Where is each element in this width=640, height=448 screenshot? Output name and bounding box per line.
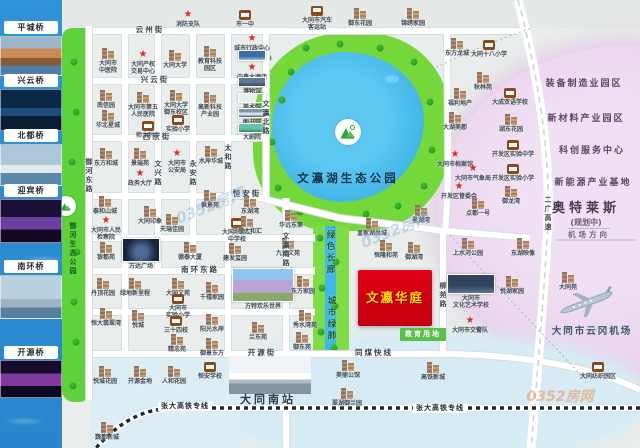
building-icon — [461, 238, 475, 249]
building-icon — [203, 46, 217, 57]
poi-label: 消防支队 — [176, 21, 200, 28]
building-icon — [183, 242, 197, 253]
building-icon — [168, 50, 182, 61]
road-label-vertical: 二广高速 — [544, 196, 552, 232]
building-marker: 东方龙城 — [445, 38, 469, 57]
building-marker: 秀水湾苑 — [293, 310, 317, 329]
railway-label: 张大高铁专线 — [158, 402, 212, 411]
building-marker: 景瑞苑 — [131, 148, 149, 167]
school-marker: 大同市 实验小学 — [166, 294, 190, 319]
school-marker: 开发区实验中学 — [492, 140, 534, 158]
poi-label: 南信园 — [97, 102, 115, 109]
building-marker: 悦城花园 — [93, 366, 117, 385]
building-icon — [99, 242, 113, 253]
poi-label: 开发区实验中学 — [492, 151, 534, 158]
building-marker: 秋林苑 — [474, 72, 492, 91]
star-icon: ★ — [173, 149, 182, 159]
poi-label: 实验小学 — [166, 126, 190, 133]
building-marker: 大同市第五 人民医院 — [128, 92, 158, 118]
building-icon — [298, 310, 312, 321]
poi-label: 御龙湾 — [502, 198, 520, 205]
photo-thumb: 博物馆 — [238, 77, 266, 95]
star-icon: ★ — [184, 10, 193, 20]
poi-label: 大同市气象局 — [455, 175, 491, 182]
poi-label: 锦绣家园 — [401, 20, 425, 27]
poi-label: 东湖映像 — [511, 250, 535, 257]
building-marker: 开源金地 — [128, 366, 152, 385]
photo-thumb: 方特欢乐世界 — [232, 268, 294, 310]
star-icon: ★ — [469, 164, 478, 174]
watermark: 0352房网 — [359, 209, 432, 251]
building-marker: 丹顶花园 — [91, 278, 115, 297]
poi-label: 大同印象 — [138, 218, 162, 225]
building-marker: 建发玺园 — [223, 243, 247, 262]
poi-label: 高铁新城 — [421, 374, 445, 381]
star-icon: ★ — [136, 169, 145, 179]
building-icon — [167, 366, 181, 377]
building-marker: 湖东花园 — [499, 114, 523, 133]
road-label: 开源街 — [248, 349, 277, 357]
park-name-vertical: 御河生态公园 — [69, 222, 77, 276]
building-icon — [353, 8, 367, 19]
star-icon: ★ — [102, 216, 111, 226]
building-marker: 南信园 — [97, 90, 115, 109]
building-marker: 华北星城 — [96, 110, 120, 129]
building-icon — [96, 278, 110, 289]
poi-label: 大同市第五 人民医院 — [128, 104, 158, 118]
building-marker: 御龙湾 — [502, 186, 520, 205]
star-icon: ★ — [248, 63, 257, 73]
building-icon — [516, 238, 530, 249]
building-marker: 锦绣家园 — [401, 8, 425, 27]
poi-label: 东湖湾 — [241, 208, 259, 215]
building-marker: 高新科技 产业园 — [198, 92, 222, 118]
building-marker: 人和花园 — [162, 366, 186, 385]
building-marker: 高铁新城 — [421, 362, 445, 381]
building-icon — [169, 90, 183, 101]
school-icon — [170, 316, 182, 326]
school-icon — [483, 40, 495, 50]
poi-label: 悦城 — [132, 322, 144, 329]
building-icon — [284, 210, 298, 221]
poi-label: 丹顶花园 — [91, 290, 115, 297]
building-icon — [407, 242, 421, 253]
building-icon — [128, 278, 142, 289]
building-icon — [133, 148, 147, 159]
poi-label: 人和花园 — [162, 378, 186, 385]
poi-label: 御湖湾 — [405, 254, 423, 261]
poi-label: 开发区实验小学 — [492, 175, 534, 182]
building-marker: 御东花园 — [348, 8, 372, 27]
poi-label: 德泰大厦 — [178, 254, 202, 261]
poi-label: 大同十八小学 — [471, 51, 507, 58]
poi-label: 大同市 中医院 — [99, 60, 117, 74]
poi-label: 福利地产 — [448, 100, 472, 107]
poi-label: 开发区管委会 — [441, 193, 477, 200]
poi-label: 泰和山城 — [93, 208, 117, 215]
land-use-tag: 教育用地 — [400, 328, 446, 341]
poi-label: 东方家园 — [291, 288, 315, 295]
building-marker: 水岸华城 — [199, 146, 223, 165]
star-poi-marker: ★中鑫大酒店 — [237, 63, 267, 81]
poi-label: 恒隆和苑 — [374, 252, 398, 259]
building-icon — [295, 332, 309, 343]
building-marker: 点都一号 — [466, 198, 490, 217]
building-icon — [100, 422, 114, 433]
building-marker: 美丽公馆 — [336, 360, 360, 379]
poi-label: 翠湖御兰园 — [332, 400, 362, 407]
building-marker: 御东苑 — [293, 332, 311, 351]
poi-label: 悦城花园 — [93, 378, 117, 385]
building-marker: 大同文苑 — [166, 278, 190, 297]
school-icon — [239, 10, 251, 20]
poi-label: 中鑫大酒店 — [237, 74, 267, 81]
poi-photo — [238, 77, 266, 87]
star-poi-marker: ★消防支队 — [176, 10, 200, 28]
road-label: 同煤快线 — [355, 349, 393, 357]
road-label-vertical: 御河东路 — [85, 158, 93, 194]
building-marker: 翠湖御兰园 — [332, 388, 362, 407]
star-poi-marker: ★大同市人民 检察院 — [91, 216, 121, 241]
zone-label: 新能源产业基地 — [554, 178, 631, 188]
star-poi-marker: ★开发区管委会 — [441, 182, 477, 200]
poi-label: 美丽公馆 — [336, 372, 360, 379]
school-marker: 师大附中 — [136, 121, 160, 139]
road-label-vertical: 柳苑路 — [439, 282, 447, 309]
star-poi-marker: ★大同市交警队 — [452, 316, 488, 334]
poi-label: 御东苑 — [293, 344, 311, 351]
building-marker: 华远东第 — [279, 210, 303, 229]
building-marker: 大同市 中医院 — [99, 48, 117, 74]
school-icon — [507, 140, 519, 150]
school-marker: 大同纺织园区 — [580, 362, 616, 380]
watermark: 0352房网 — [174, 185, 247, 227]
building-icon — [101, 48, 115, 59]
building-marker: 大同大学 御东校区 — [164, 90, 188, 116]
building-icon — [251, 322, 265, 333]
building-icon — [99, 148, 113, 159]
poi-label: 大同市档案馆 — [437, 161, 473, 168]
poi-label: 大剧院 — [243, 134, 261, 141]
poi-label: 东方和城 — [94, 160, 118, 167]
poi-photo — [238, 50, 266, 61]
school-icon — [142, 121, 154, 131]
road-label-vertical: 永安路 — [189, 160, 197, 187]
star-poi-marker: ★大同市档案馆 — [437, 150, 473, 168]
poi-label: 景瑞苑 — [131, 160, 149, 167]
building-icon — [453, 88, 467, 99]
zone-sublabel: (规划中) — [570, 218, 601, 227]
building-marker: 银都苑 — [97, 242, 115, 261]
building-marker: 东方家园 — [291, 276, 315, 295]
property-highlight: 文瀛华庭 — [358, 270, 432, 326]
star-icon: ★ — [455, 182, 464, 192]
building-icon — [448, 112, 462, 123]
building-marker: 恒大翡翠湾 — [91, 308, 121, 327]
building-icon — [561, 272, 575, 283]
building-icon — [101, 110, 115, 121]
building-marker: 教育科技 园区 — [198, 46, 222, 72]
building-icon — [406, 8, 420, 19]
poi-label: 美术馆 — [243, 104, 261, 111]
corridor-label: 绿色长廊 — [325, 230, 335, 276]
poi-label: 大同市 实验小学 — [166, 305, 190, 319]
poi-label: 大同市交警队 — [452, 327, 488, 334]
building-icon — [136, 92, 150, 103]
poi-label: 方特欢乐世界 — [245, 303, 281, 310]
poi-label: 东方龙城 — [445, 50, 469, 57]
school-icon — [172, 115, 184, 125]
building-icon — [450, 38, 464, 49]
building-icon — [98, 196, 112, 207]
building-icon — [131, 310, 145, 321]
poi-label: 建发玺园 — [223, 255, 247, 262]
building-icon — [170, 334, 184, 345]
poi-label: 上水河公园 — [453, 250, 483, 257]
building-marker: 福利地产 — [448, 88, 472, 107]
poi-label: 大同大学 御东校区 — [164, 102, 188, 116]
star-poi-marker: ★大同产权 交易中心 — [131, 50, 155, 75]
building-marker: 悦城 — [131, 310, 145, 329]
star-poi-marker: ★大同市气象局 — [455, 164, 491, 182]
station-label: 大同南站 — [240, 394, 296, 406]
building-icon — [340, 388, 354, 399]
building-icon — [341, 360, 355, 371]
road-label-vertical: 文兴路 — [154, 160, 162, 187]
building-marker: 御景东方 — [200, 338, 224, 357]
building-icon — [504, 186, 518, 197]
building-icon — [205, 314, 219, 325]
building-marker: 大同印象 — [138, 206, 162, 225]
building-marker: 东方和城 — [94, 148, 118, 167]
poi-label: 大同市 公安局 — [168, 160, 186, 174]
poi-label: 大湖美郡 — [443, 124, 467, 131]
zone-label-large: 奥特莱斯 — [552, 202, 620, 216]
poi-label: 师大附中 — [136, 132, 160, 139]
building-icon — [471, 198, 485, 209]
poi-markers-layer: ★消防支队市一中大同市汽车 客运站御东花园锦绣家园大同市 中医院★大同产权 交易… — [0, 0, 640, 448]
poi-label: 大成双语学校 — [492, 99, 528, 106]
building-marker: 德泰大厦 — [178, 242, 202, 261]
star-poi-marker: ★城市行政中心 — [234, 34, 270, 52]
building-marker: 千禧家园 — [200, 282, 224, 301]
poi-label: 开源金地 — [128, 378, 152, 385]
school-marker: 三十四校 — [164, 316, 188, 334]
zone-label: 科创服务中心 — [559, 146, 625, 156]
poi-label: 恒大翡翠湾 — [91, 320, 121, 327]
photo-thumb: 大同市 文化艺术学校 — [447, 274, 495, 309]
building-marker: 大湖美郡 — [443, 112, 467, 131]
building-marker: 大同大学 — [163, 50, 187, 69]
school-marker: 实验小学 — [166, 115, 190, 133]
poi-label: 银都苑 — [97, 254, 115, 261]
poi-label: 千禧家园 — [200, 294, 224, 301]
building-icon — [205, 282, 219, 293]
location-map: 平城桥兴云桥北都桥迎宾桥南环桥开源桥 ★消防支队市一中大同市汽车 客运站御东花园… — [0, 0, 640, 448]
building-marker: 悦湖家园 — [500, 276, 524, 295]
poi-photo — [229, 356, 311, 394]
road-label-vertical: 太和路 — [224, 144, 232, 171]
school-icon — [172, 294, 184, 304]
poi-label: 恒安学校 — [198, 373, 222, 380]
poi-label: 大同纺织园区 — [580, 373, 616, 380]
building-icon — [143, 206, 157, 217]
poi-label: 大同市人民 检察院 — [91, 227, 121, 241]
building-icon — [203, 92, 217, 103]
photo-thumb — [238, 50, 266, 61]
school-icon — [504, 88, 516, 98]
building-icon — [98, 366, 112, 377]
poi-label: 图书馆 — [243, 119, 261, 126]
building-marker: 御湖湾 — [405, 242, 423, 261]
star-icon: ★ — [139, 50, 148, 60]
star-icon: ★ — [466, 316, 475, 326]
poi-label: 湖东花园 — [499, 126, 523, 133]
building-icon — [133, 366, 147, 377]
building-marker: 兰东苑 — [249, 322, 267, 341]
bus-icon — [311, 6, 323, 16]
poi-label: 秀水湾苑 — [293, 322, 317, 329]
building-icon — [99, 90, 113, 101]
poi-label: 大同大学 — [163, 62, 187, 69]
poi-label: 华远东第 — [279, 222, 303, 229]
school-marker: 开发区实验小学 — [492, 164, 534, 182]
poi-label: 秋林苑 — [474, 84, 492, 91]
poi-label: 城市行政中心 — [234, 45, 270, 52]
school-icon — [592, 362, 604, 372]
building-marker: 阳光水岸 — [200, 314, 224, 333]
bus-station-marker: 大同市汽车 客运站 — [302, 6, 332, 31]
poi-label: 点都一号 — [466, 210, 490, 217]
building-icon — [171, 278, 185, 289]
school-icon — [204, 362, 216, 372]
poi-label: 三盛太和汇 — [232, 228, 262, 235]
poi-label: 万达广场 — [129, 263, 153, 270]
star-poi-marker: ★大同市 公安局 — [168, 149, 186, 174]
road-label-vertical: 文瀛北路 — [262, 100, 270, 136]
poi-label: 高新科技 产业园 — [198, 104, 222, 118]
poi-label: 兰东苑 — [249, 334, 267, 341]
poi-label: 悦湖家园 — [500, 288, 524, 295]
building-icon — [204, 146, 218, 157]
poi-label: 绿地新里程 — [120, 290, 150, 297]
building-icon — [505, 276, 519, 287]
watermark: 0352房网 — [527, 390, 594, 405]
railway-label: 张大高铁专线 — [413, 404, 467, 413]
road-label: 西京街 — [143, 133, 172, 141]
poi-label: 市一中 — [236, 21, 254, 28]
building-icon — [426, 362, 440, 373]
road-label-vertical: 文瀛南路 — [282, 232, 290, 268]
school-marker: 大同十八小学 — [471, 40, 507, 58]
building-icon — [99, 308, 113, 319]
building-icon — [228, 243, 242, 254]
poi-photo — [447, 274, 495, 294]
poi-photo — [232, 268, 294, 302]
road-label: 南环东路 — [181, 266, 219, 274]
photo-thumb: 万达广场 — [122, 238, 160, 270]
poi-label: 魏都新城 — [95, 434, 119, 441]
poi-label: 阳光水岸 — [200, 326, 224, 333]
poi-label: 教育科技 园区 — [198, 58, 222, 72]
building-marker: 泰和山城 — [93, 196, 117, 215]
building-marker: 绿地新里程 — [120, 278, 150, 297]
building-icon — [240, 216, 254, 227]
poi-label: 御景东方 — [200, 350, 224, 357]
school-marker: 恒安学校 — [198, 362, 222, 380]
airport-direction-label: 机场方向 — [568, 228, 610, 239]
poi-label: 大同市第二 中学校 — [222, 229, 252, 243]
building-marker: 上水河公园 — [453, 238, 483, 257]
star-poi-marker: ★政务大厅 — [128, 169, 152, 187]
school-icon — [507, 164, 519, 174]
star-icon: ★ — [248, 34, 257, 44]
poi-label: 大同市 文化艺术学校 — [453, 295, 489, 309]
property-name: 文瀛华庭 — [366, 291, 424, 305]
poi-label: 三十四校 — [164, 327, 188, 334]
poi-label: 大同市汽车 客运站 — [302, 17, 332, 31]
building-icon — [205, 338, 219, 349]
school-marker: 大成双语学校 — [492, 88, 528, 106]
poi-photo — [122, 238, 160, 262]
building-icon — [504, 114, 518, 125]
zone-label: 新材料产业园区 — [547, 114, 624, 124]
building-marker: 三盛太和汇 — [232, 216, 262, 235]
poi-label: 华北星城 — [96, 122, 120, 129]
star-icon: ★ — [451, 150, 460, 160]
road-label: 兴云街 — [141, 76, 170, 84]
poi-label: 政务大厅 — [128, 180, 152, 187]
zone-label: 装备制造业园区 — [545, 79, 622, 89]
road-label: 云州街 — [136, 26, 165, 34]
poi-label: 御东花园 — [348, 20, 372, 27]
corridor-label: 城市绿肺 — [326, 296, 336, 342]
poi-label: 精忠苑 — [168, 346, 186, 353]
school-marker: 市一中 — [236, 10, 254, 28]
building-icon — [296, 276, 310, 287]
photo-thumb — [229, 356, 311, 394]
park-name-label: 文瀛湖生态公园 — [297, 172, 399, 185]
poi-label: 博物馆 — [243, 88, 261, 95]
building-icon — [476, 72, 490, 83]
poi-label: 大同产权 交易中心 — [131, 61, 155, 75]
school-icon — [231, 218, 243, 228]
poi-label: 大同文苑 — [166, 290, 190, 297]
building-marker: 精忠苑 — [168, 334, 186, 353]
school-marker: 大同市第二 中学校 — [222, 218, 252, 243]
building-marker: 东湖映像 — [511, 238, 535, 257]
building-marker: 魏都新城 — [95, 422, 119, 441]
poi-label: 水岸华城 — [199, 158, 223, 165]
